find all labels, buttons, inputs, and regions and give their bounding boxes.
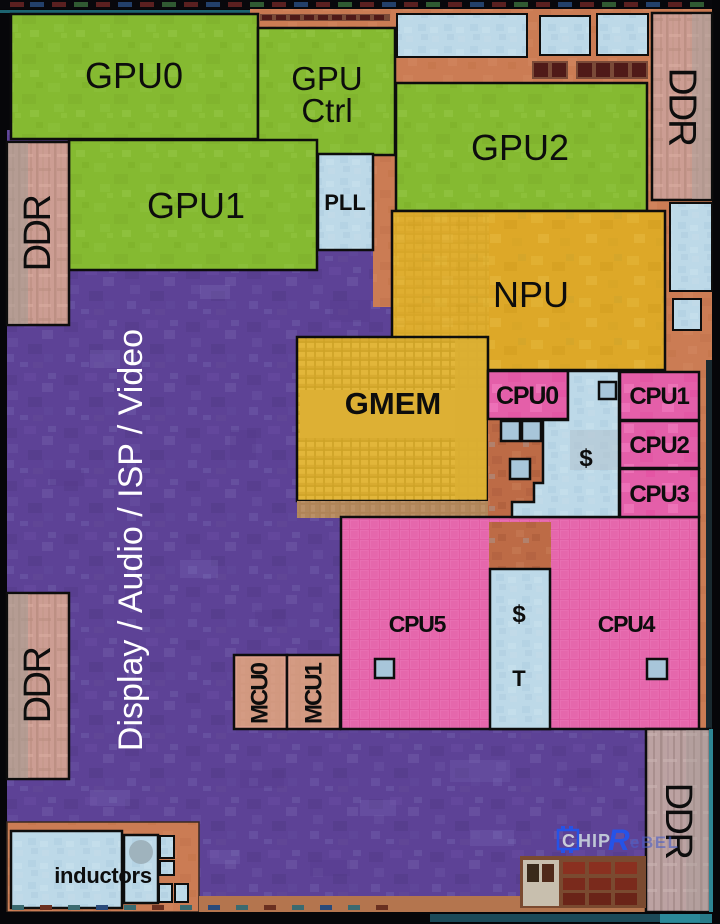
svg-text:MCU1: MCU1 [301,662,328,724]
svg-text:CPU2: CPU2 [629,432,689,459]
svg-text:$: $ [512,601,526,628]
svg-text:Ctrl: Ctrl [301,92,352,129]
svg-text:CPU3: CPU3 [629,481,689,508]
svg-text:T: T [512,666,526,691]
svg-text:PLL: PLL [324,190,366,215]
svg-text:GPU2: GPU2 [471,127,569,168]
svg-text:GPU0: GPU0 [85,55,183,96]
svg-text:Display / Audio / ISP / Video: Display / Audio / ISP / Video [112,329,150,751]
svg-text:DDR: DDR [661,68,704,146]
svg-text:CPU4: CPU4 [598,611,656,637]
svg-text:CPU1: CPU1 [629,383,689,410]
svg-text:DDR: DDR [17,196,59,272]
svg-text:GPU1: GPU1 [147,185,245,226]
svg-text:CPU0: CPU0 [496,382,558,410]
svg-text:GMEM: GMEM [345,386,441,421]
svg-text:HIP: HIP [578,831,611,851]
svg-text:CPU5: CPU5 [389,611,447,637]
svg-text:DDR: DDR [17,648,59,724]
svg-text:NPU: NPU [493,274,569,315]
svg-text:MCU0: MCU0 [247,662,274,724]
svg-text:eBEL: eBEL [630,833,679,852]
svg-text:C: C [562,831,576,851]
svg-text:inductors: inductors [54,863,152,888]
svg-text:$: $ [579,445,593,472]
svg-text:R: R [608,824,630,857]
